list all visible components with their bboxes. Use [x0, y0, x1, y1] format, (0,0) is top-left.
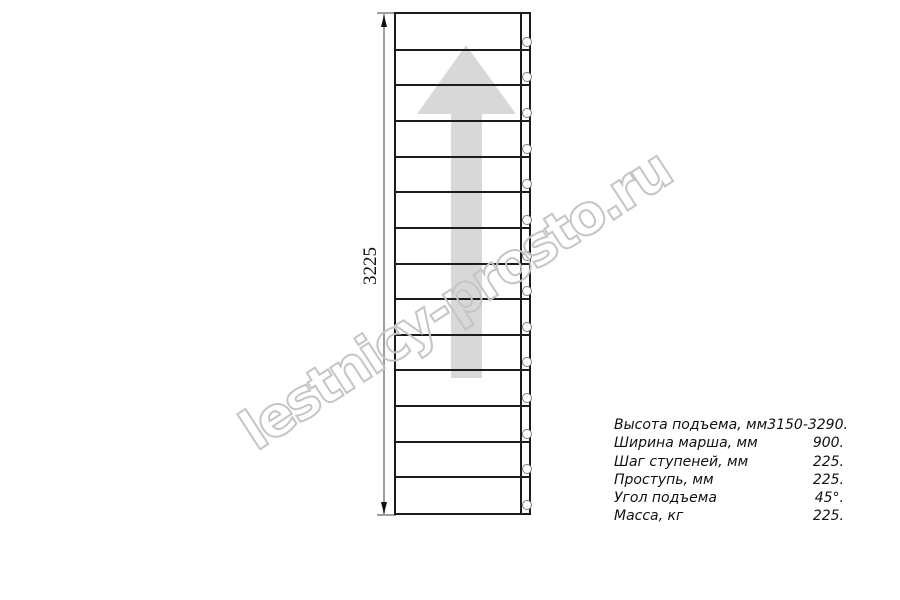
- spec-value: 3150-3290.: [767, 417, 848, 433]
- step-line: [396, 441, 529, 443]
- step-line: [396, 84, 529, 86]
- screw-hole-icon: [522, 464, 532, 474]
- dimension-label: 3225: [360, 247, 382, 285]
- specs-table: Высота подъема, мм3150-3290.Ширина марша…: [614, 417, 844, 527]
- dimension-arrowhead-top-icon: [381, 15, 387, 27]
- screw-hole-icon: [522, 215, 532, 225]
- spec-row: Угол подъема45°.: [614, 490, 844, 508]
- screw-hole-icon: [522, 72, 532, 82]
- spec-value: 225.: [813, 472, 844, 488]
- spec-label: Шаг ступеней, мм: [614, 454, 748, 470]
- step-line: [396, 405, 529, 407]
- step-line: [396, 263, 529, 265]
- spec-label: Угол подъема: [614, 490, 717, 506]
- step-line: [396, 334, 529, 336]
- step-line: [396, 156, 529, 158]
- spec-label: Масса, кг: [614, 508, 683, 524]
- screw-hole-icon: [522, 37, 532, 47]
- spec-value: 900.: [813, 435, 844, 451]
- spec-row: Масса, кг225.: [614, 508, 844, 526]
- screw-hole-icon: [522, 251, 532, 261]
- spec-row: Ширина марша, мм900.: [614, 435, 844, 453]
- spec-value: 45°.: [815, 490, 844, 506]
- spec-row: Высота подъема, мм3150-3290.: [614, 417, 844, 435]
- screw-hole-icon: [522, 179, 532, 189]
- step-line: [396, 476, 529, 478]
- spec-label: Высота подъема, мм: [614, 417, 767, 433]
- screw-hole-icon: [522, 393, 532, 403]
- screw-hole-icon: [522, 322, 532, 332]
- spec-value: 225.: [813, 454, 844, 470]
- spec-value: 225.: [813, 508, 844, 524]
- screw-hole-icon: [522, 500, 532, 510]
- step-line: [396, 120, 529, 122]
- screw-hole-icon: [522, 429, 532, 439]
- dimension-arrowhead-bottom-icon: [381, 502, 387, 514]
- stairs-outline: [394, 12, 531, 515]
- spec-label: Ширина марша, мм: [614, 435, 758, 451]
- staircase-drawing-page: 3225 lestnicy-prosto.ru Высота подъема, …: [0, 0, 900, 600]
- step-line: [396, 191, 529, 193]
- screw-hole-icon: [522, 144, 532, 154]
- spec-row: Проступь, мм225.: [614, 472, 844, 490]
- spec-row: Шаг ступеней, мм225.: [614, 454, 844, 472]
- step-line: [396, 369, 529, 371]
- screw-hole-icon: [522, 286, 532, 296]
- step-line: [396, 49, 529, 51]
- spec-label: Проступь, мм: [614, 472, 714, 488]
- step-line: [396, 298, 529, 300]
- screw-hole-icon: [522, 108, 532, 118]
- height-dimension-line: [383, 14, 385, 514]
- step-line: [396, 227, 529, 229]
- screw-hole-icon: [522, 357, 532, 367]
